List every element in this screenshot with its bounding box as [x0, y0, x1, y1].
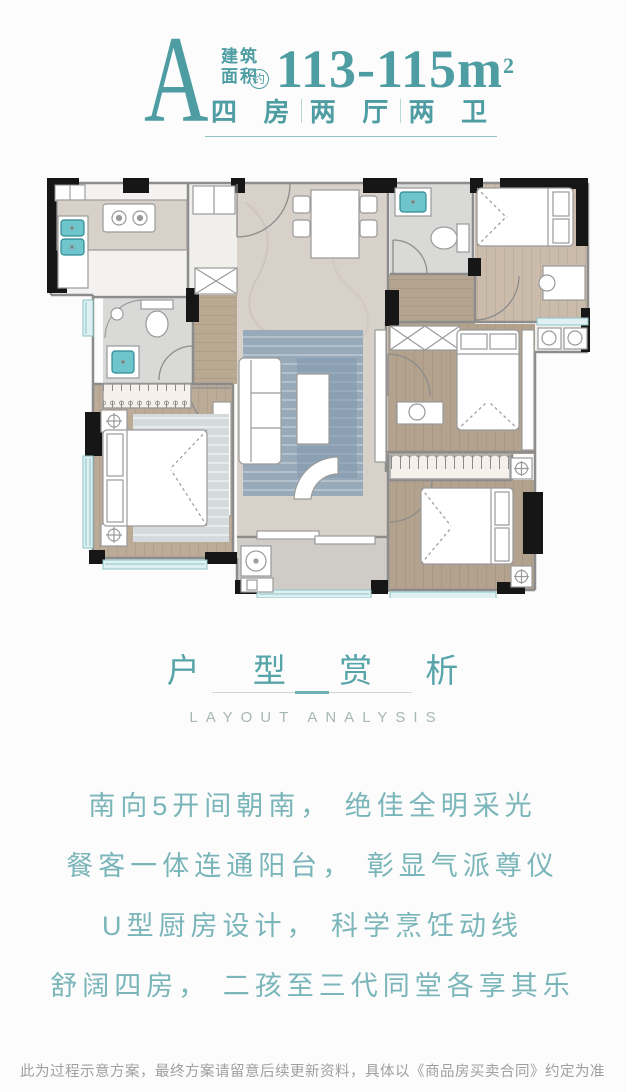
square-meter-exponent: 2 [503, 53, 514, 78]
analysis-text: 南向5开间朝南， 绝佳全明采光 餐客一体连通阳台， 彰显气派尊仪 U型厨房设计，… [0, 776, 625, 1016]
spec-baths: 两 卫 [402, 92, 497, 129]
plan-type-letter: A [144, 22, 202, 138]
analysis-line-2: 餐客一体连通阳台， 彰显气派尊仪 [0, 836, 625, 896]
sliding-door [315, 536, 375, 544]
dining-chair [293, 196, 310, 213]
coffee-table [297, 374, 329, 444]
pillow [107, 480, 123, 522]
floor-plan [45, 162, 593, 598]
dining-chair [360, 196, 377, 213]
window-band [83, 456, 93, 548]
area-value: 113-115m2 [276, 38, 514, 97]
chair [539, 275, 555, 291]
tv-console [375, 330, 386, 462]
window-band [257, 590, 371, 598]
dining-chair [360, 220, 377, 237]
window-band [390, 592, 496, 598]
section-divider [212, 692, 412, 693]
toilet-tank [457, 224, 469, 252]
analysis-line-1: 南向5开间朝南， 绝佳全明采光 [0, 776, 625, 836]
nightstand [101, 524, 127, 546]
sofa [239, 358, 281, 464]
pillow [107, 434, 123, 476]
spec-halls: 两 厅 [304, 92, 399, 129]
spec-divider [400, 99, 401, 123]
wardrobe-strip [522, 330, 534, 450]
section-title: 户 型 赏 析 [0, 644, 625, 692]
divider-accent [295, 691, 329, 694]
pillow [553, 219, 569, 243]
nightstand [101, 410, 127, 432]
spec-rooms: 四 房 [205, 92, 300, 129]
toilet [431, 227, 457, 249]
approx-badge: 约 [249, 69, 269, 89]
pillow [495, 528, 509, 561]
pillow [495, 492, 509, 525]
toilet [146, 311, 168, 337]
disclaimer: 此为过程示意方案，最终方案请留意后续更新资料，具体以《商品房买卖合同》约定为准 [0, 1060, 625, 1081]
chair [409, 404, 425, 420]
spec-divider [301, 99, 302, 123]
dining-chair [293, 220, 310, 237]
spec-row: 四 房 两 厅 两 卫 [205, 92, 497, 137]
window-band [83, 300, 93, 336]
dining-table [311, 190, 359, 258]
window-band [103, 560, 207, 569]
window-band [537, 318, 588, 325]
plant-stand [511, 566, 532, 587]
pillow [490, 334, 516, 349]
plant-stand [511, 458, 532, 479]
section-subtitle: LAYOUT ANALYSIS [0, 709, 625, 726]
pillow [461, 334, 487, 349]
analysis-line-3: U型厨房设计， 科学烹饪动线 [0, 896, 625, 956]
sliding-door [257, 531, 319, 539]
toilet-tank [141, 300, 173, 309]
analysis-line-4: 舒阔四房， 二孩至三代同堂各享其乐 [0, 956, 625, 1016]
wardrobe [390, 326, 460, 350]
pillow [553, 192, 569, 216]
area-label-line1: 建筑 [221, 47, 259, 67]
poster-page: A 建筑 面积 约 113-115m2 四 房 两 厅 两 卫 [0, 0, 625, 1092]
